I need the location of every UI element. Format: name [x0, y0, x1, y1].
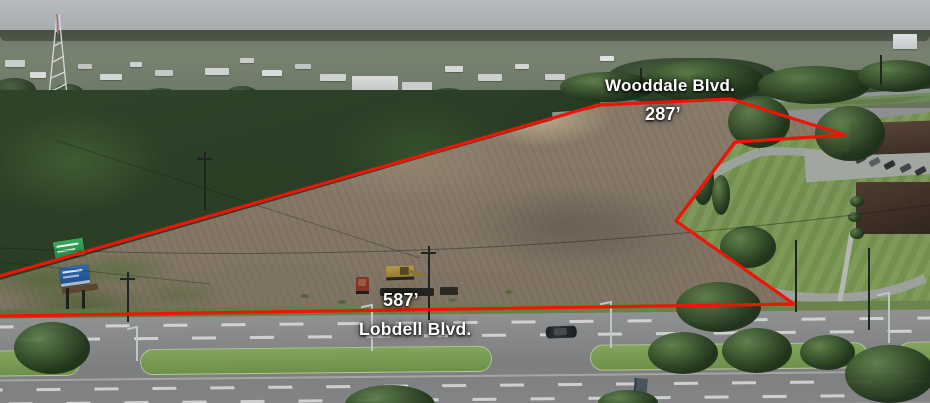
label-top-street: Wooddale Blvd.: [605, 76, 735, 96]
label-bottom-street: Lobdell Blvd.: [359, 319, 471, 340]
parcel-outline: [0, 0, 930, 403]
label-bottom-frontage: 587’: [383, 290, 419, 311]
label-top-frontage: 287’: [645, 104, 681, 125]
aerial-photo: Wooddale Blvd. 287’ 587’ Lobdell Blvd.: [0, 0, 930, 403]
